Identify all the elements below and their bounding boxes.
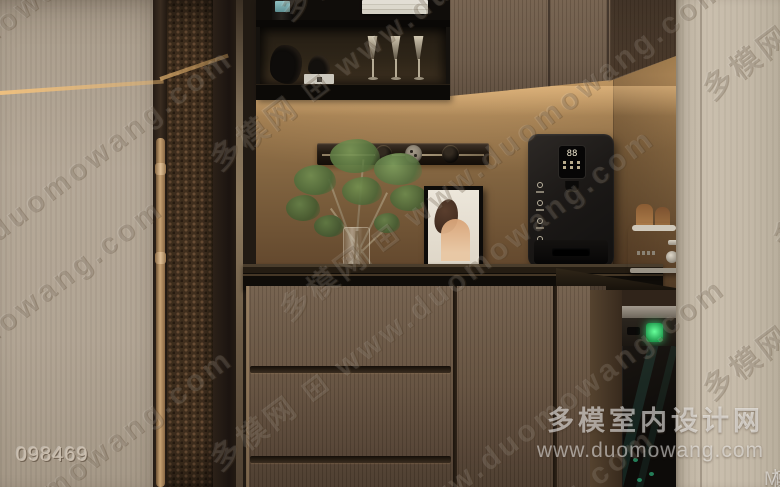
plant-foliage: [294, 165, 336, 195]
plant-foliage: [390, 185, 428, 211]
toaster-button: [647, 251, 650, 255]
model-id-value: M0090510: [764, 469, 780, 487]
left-wall: [0, 0, 160, 487]
watermark-brand-block: 多模室内设计网 www.duomowang.com 模型ID: M0090510: [537, 406, 764, 469]
dark-sculpture: [270, 45, 302, 84]
dispenser-drip-tray: [534, 240, 608, 264]
champagne-glass: [410, 36, 427, 82]
oven-control-panel: [622, 318, 676, 346]
plant-foliage: [374, 153, 422, 185]
oven-top-trim: [622, 306, 676, 318]
champagne-glass: [364, 36, 381, 82]
door-frame: [213, 0, 236, 487]
oven-power-led: [646, 323, 663, 342]
toaster-button: [652, 251, 655, 255]
toaster-button: [642, 251, 645, 255]
dispenser-display-value: 88: [559, 149, 585, 159]
power-socket: [442, 145, 459, 163]
box-mark: [317, 77, 322, 82]
dispenser-display-indicators: [563, 166, 581, 169]
oven-handle-slot: [627, 327, 640, 335]
plant-foliage: [314, 215, 344, 237]
tray-slot: [552, 248, 590, 256]
plant-foliage: [286, 195, 320, 221]
opening-lit-edge: [236, 0, 243, 487]
dispenser-spout: [565, 181, 579, 192]
render-id-code: 098469: [16, 444, 89, 467]
toaster-body: [628, 223, 680, 273]
mode-icon: [537, 218, 543, 224]
toaster-base: [630, 268, 678, 273]
champagne-glass: [387, 36, 404, 82]
book-stack: [362, 0, 428, 14]
watermark-site-name: 多模室内设计网: [537, 406, 764, 436]
plant-foliage: [374, 213, 400, 233]
plant-foliage: [330, 139, 380, 173]
dispenser-display-indicators: [563, 161, 581, 164]
toaster-button: [637, 251, 640, 255]
artwork-arch-shape: [441, 219, 470, 261]
water-dispenser: 88: [528, 134, 614, 267]
cabinet-door-seam: [453, 286, 457, 487]
countertop-edge-highlight: [243, 274, 663, 276]
drawer-handle-recess: [250, 366, 451, 373]
mode-icon: [537, 182, 543, 188]
bust-figurine: [308, 55, 330, 75]
toaster-slots: [632, 225, 676, 231]
interior-render: 88: [0, 0, 780, 487]
display-shelf-unit: [256, 0, 450, 100]
handle-joint: [155, 163, 166, 175]
frame-mat: [428, 190, 479, 272]
watermark-site-url: www.duomowang.com: [537, 439, 764, 463]
picture-frame: [424, 186, 483, 276]
interior-light-dot: [649, 472, 654, 476]
wardrobe-door-handle: [156, 138, 165, 487]
cabinet-door-seam: [607, 0, 609, 80]
plant-foliage: [342, 177, 382, 205]
cabinet-door-seam: [548, 0, 550, 90]
bottle-label: [275, 1, 290, 12]
cabinet-edge-highlight: [246, 286, 249, 487]
shelf-niche: [260, 27, 446, 84]
potted-plant: [286, 143, 441, 283]
dispenser-display: 88: [558, 145, 586, 179]
shelf-divider: [256, 20, 450, 27]
mode-icon: [537, 200, 543, 206]
interior-light-dot: [637, 478, 642, 482]
toaster: [628, 202, 680, 278]
handle-joint: [155, 252, 166, 264]
drawer-handle-recess: [250, 456, 451, 463]
shelf-bottom-board: [256, 84, 450, 100]
